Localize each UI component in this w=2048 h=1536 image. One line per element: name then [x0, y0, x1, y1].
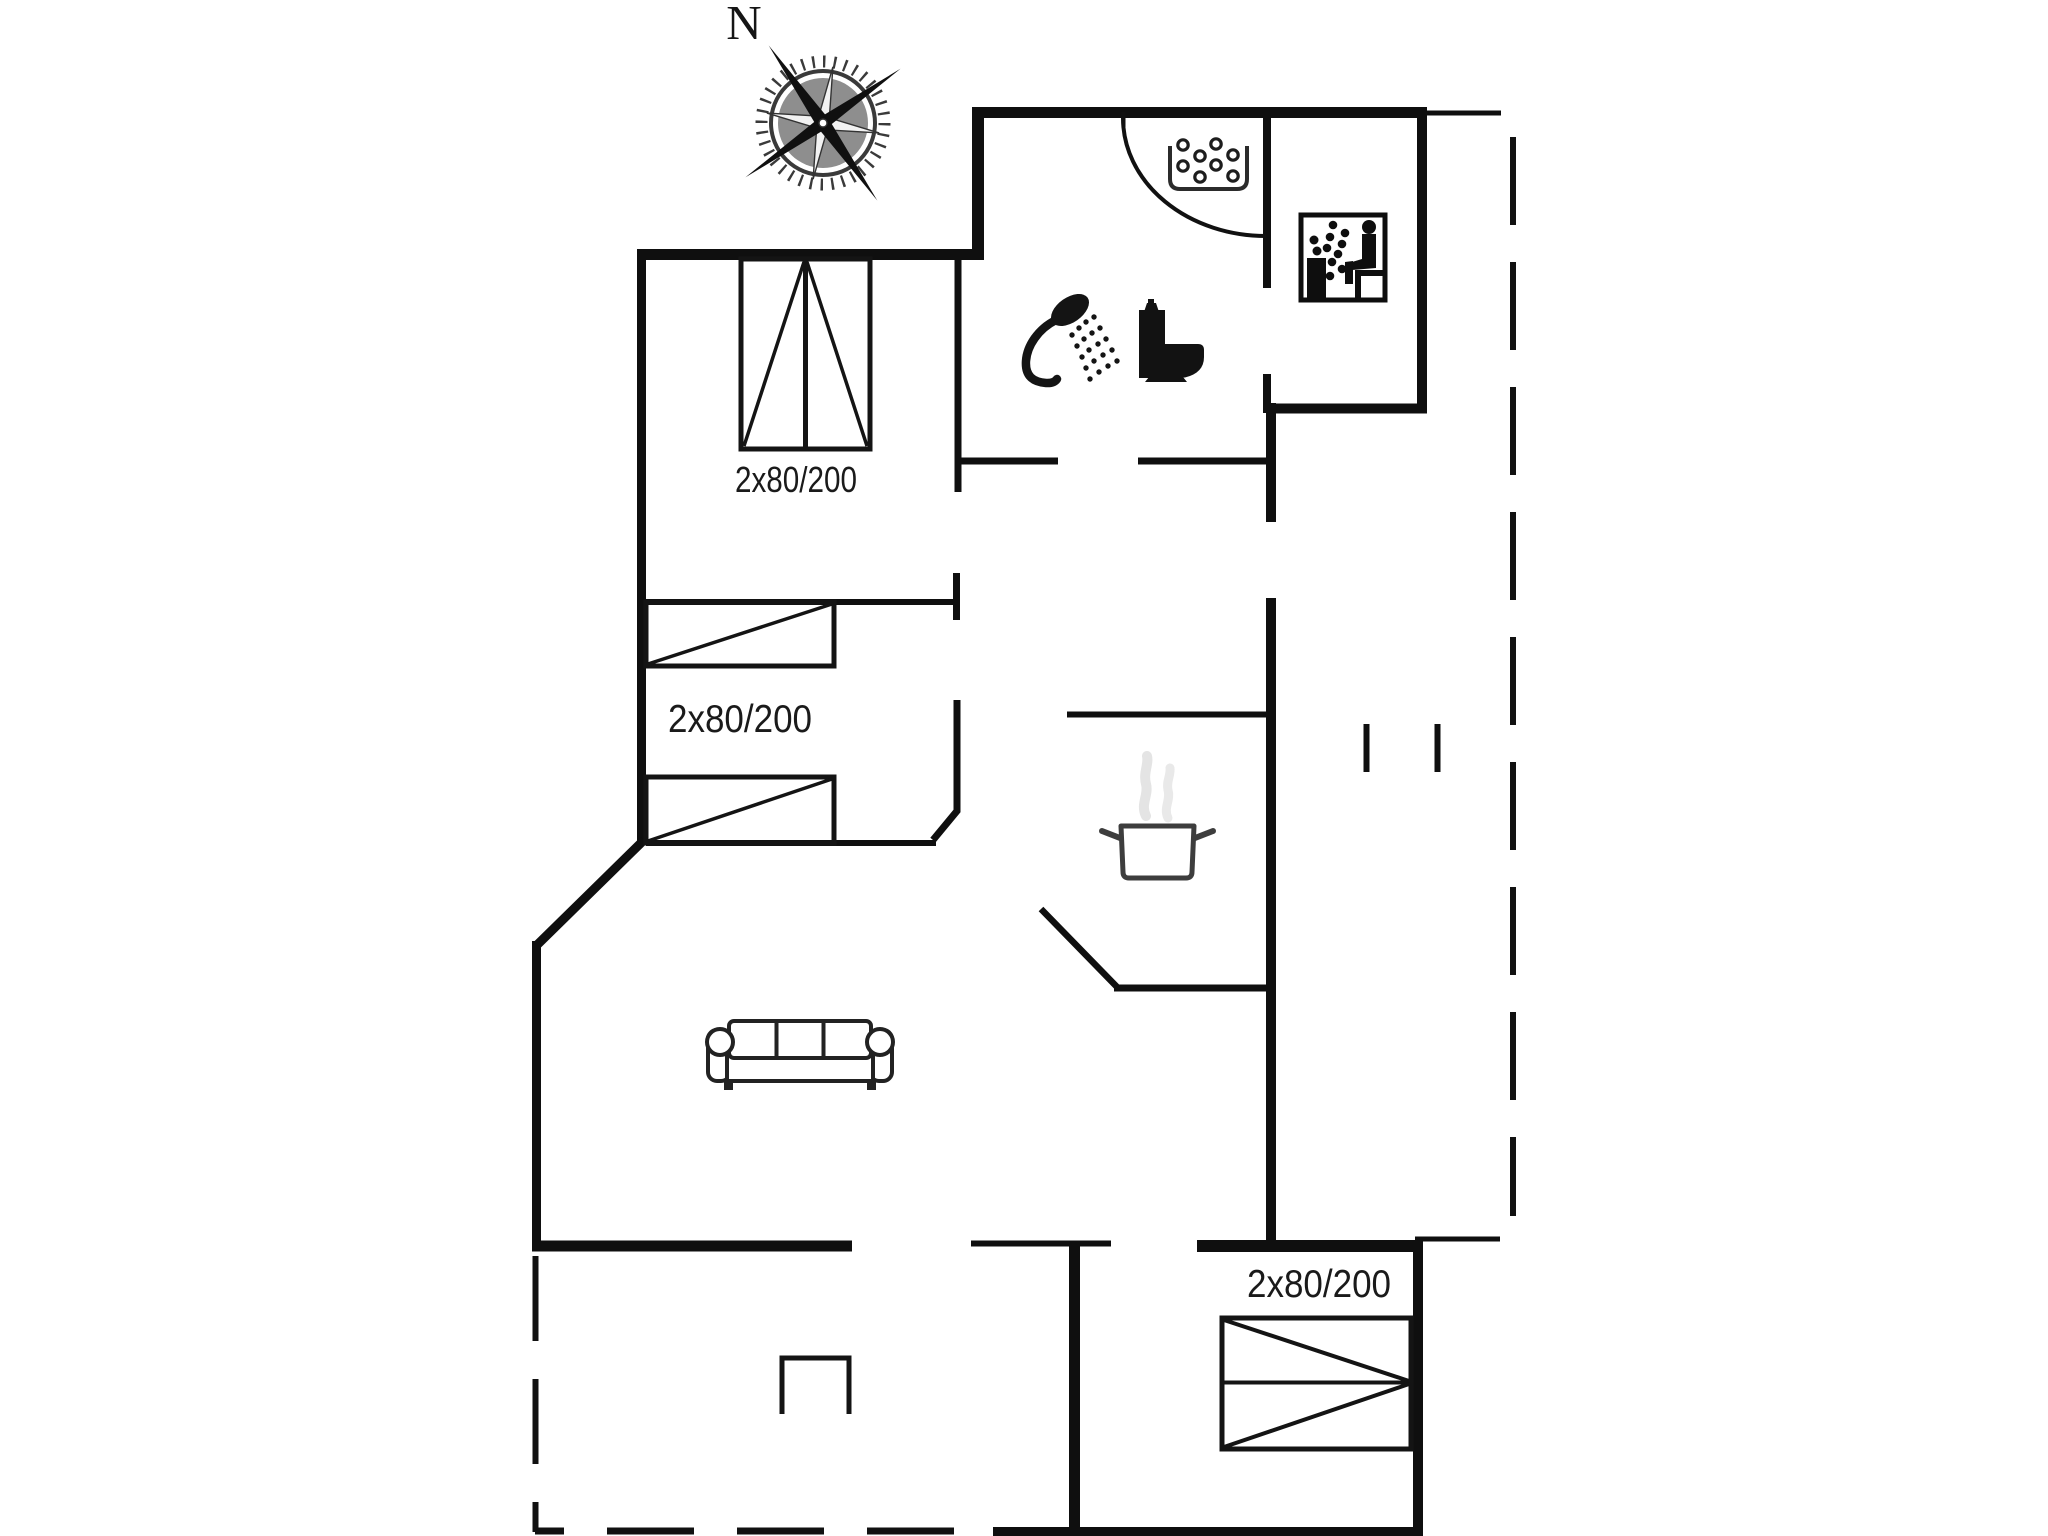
svg-text:2x80/200: 2x80/200	[668, 698, 812, 741]
svg-text:2x80/200: 2x80/200	[735, 459, 857, 500]
svg-text:2x80/200: 2x80/200	[1247, 1263, 1391, 1306]
svg-text:N: N	[726, 0, 761, 50]
